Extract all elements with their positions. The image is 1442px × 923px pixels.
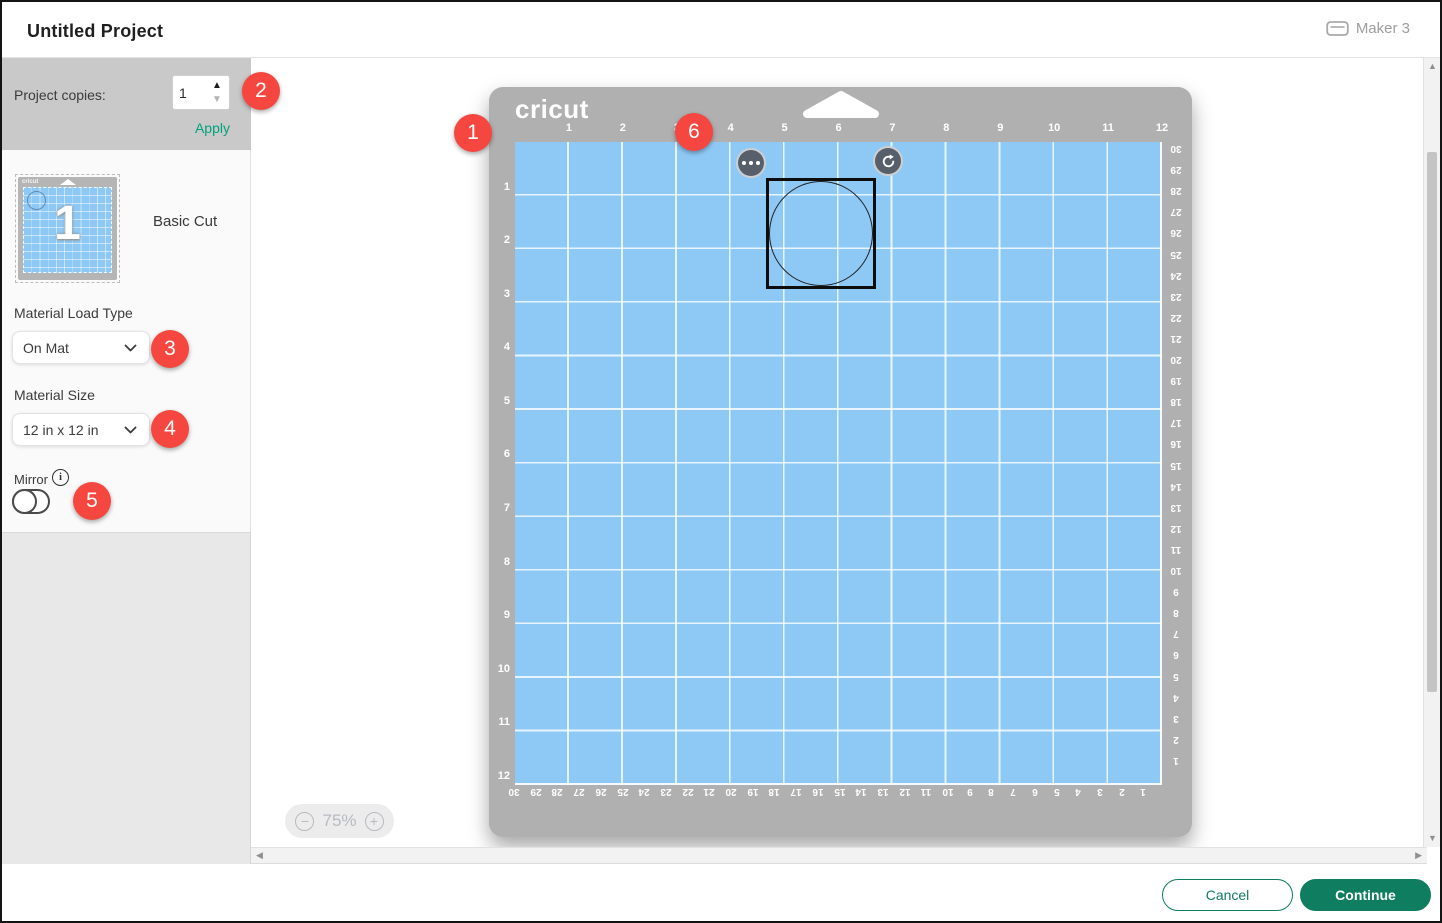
page-title: Untitled Project [27,21,163,42]
cricut-logo: cricut [515,94,589,125]
mirror-toggle[interactable] [12,489,50,514]
app-window: Untitled Project Maker 3 Project copies:… [0,0,1442,923]
ellipsis-icon [742,161,760,165]
continue-button[interactable]: Continue [1300,879,1431,911]
material-load-type-select[interactable]: On Mat [12,331,150,364]
mat-thumbnail-brand: cricut [22,179,38,185]
top-bar: Untitled Project Maker 3 [2,2,1440,58]
zoom-out-button[interactable]: − [295,812,314,831]
mat-thumbnail[interactable]: cricut 1 [15,174,120,283]
copies-stepper[interactable]: ▲ ▼ [172,75,230,110]
callout-6: 6 [675,113,713,151]
mirror-toggle-knob [12,489,37,514]
apply-button[interactable]: Apply [2,120,230,136]
material-load-type-label: Material Load Type [14,305,133,321]
rotate-icon [881,154,896,169]
scroll-up-icon[interactable]: ▲ [1428,62,1437,71]
mat-thumbnail-frame: cricut 1 [18,177,117,280]
zoom-control: − 75% + [285,804,394,838]
callout-3: 3 [151,330,189,368]
selection-box[interactable] [766,178,876,289]
scroll-right-icon[interactable]: ▶ [1415,851,1422,860]
material-size-label: Material Size [14,387,95,403]
stepper-down-icon[interactable]: ▼ [209,92,225,107]
scroll-down-icon[interactable]: ▼ [1428,834,1437,843]
zoom-level: 75% [322,811,356,831]
mat-frame: cricut [489,87,1192,837]
horizontal-scrollbar[interactable]: ◀ ▶ [251,847,1427,864]
material-size-select[interactable]: 12 in x 12 in [12,413,150,446]
stepper-up-icon[interactable]: ▲ [209,78,225,93]
linetype-label: Basic Cut [153,213,217,230]
project-copies-label: Project copies: [14,87,106,103]
sidebar-lower-panel [2,532,251,864]
machine-label: Maker 3 [1356,20,1410,37]
chevron-down-icon [124,344,137,352]
mat-canvas: cricut 123456789101112123456789101112302… [251,58,1427,847]
mat-thumbnail-grid: 1 [23,187,112,273]
vertical-scrollbar[interactable]: ▲ ▼ [1423,58,1440,847]
zoom-in-button[interactable]: + [365,812,384,831]
chevron-down-icon [124,426,137,434]
copies-input[interactable] [179,76,209,109]
callout-4: 4 [151,410,189,448]
mat-thumbnail-number: 1 [24,196,111,251]
mat-settings-section: cricut 1 Basic Cut Material Load Type On… [2,150,251,532]
material-size-value: 12 in x 12 in [23,422,124,438]
machine-icon [1326,20,1349,37]
callout-2: 2 [242,72,280,110]
circle-shape[interactable] [769,181,873,286]
cancel-button[interactable]: Cancel [1162,879,1293,911]
mat-tab-shape [800,90,882,119]
footer-bar: Cancel Continue [2,864,1440,921]
scroll-left-icon[interactable]: ◀ [256,851,263,860]
material-load-type-value: On Mat [23,340,124,356]
project-copies-section: Project copies: ▲ ▼ Apply [2,58,251,150]
info-icon[interactable]: i [52,469,69,486]
minus-icon: − [301,814,309,828]
rotate-button[interactable] [873,146,903,176]
callout-5: 5 [73,482,111,520]
mat-thumbnail-tab [60,179,76,185]
vertical-scrollbar-thumb[interactable] [1427,152,1437,692]
machine-selector[interactable]: Maker 3 [1326,20,1410,37]
plus-icon: + [370,814,378,828]
mirror-label: Mirror [14,472,48,487]
callout-1: 1 [454,114,492,152]
more-actions-button[interactable] [736,148,766,178]
